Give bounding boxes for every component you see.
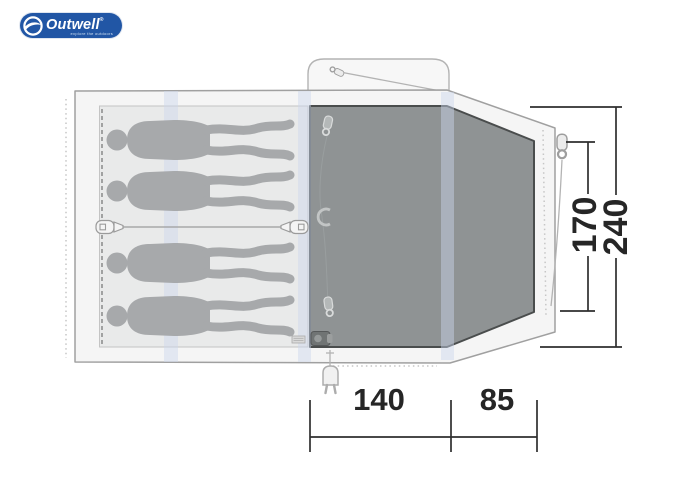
- cable-entry-port: [311, 332, 333, 346]
- dimension-label-140: 140: [353, 382, 405, 417]
- tent-floorplan: 170 240 140 85: [0, 0, 700, 497]
- dimension-label-85: 85: [480, 382, 514, 417]
- page: Outwell® explore the outdoors: [0, 0, 700, 497]
- living-area-floor: [310, 106, 534, 347]
- zipper-pull-icon: [557, 134, 567, 158]
- dimension-bottom: 140 85: [310, 382, 537, 452]
- pole-band: [441, 92, 454, 360]
- label-tag: [292, 336, 305, 343]
- dimension-label-240: 240: [597, 199, 635, 256]
- canopy-outline: [308, 59, 449, 93]
